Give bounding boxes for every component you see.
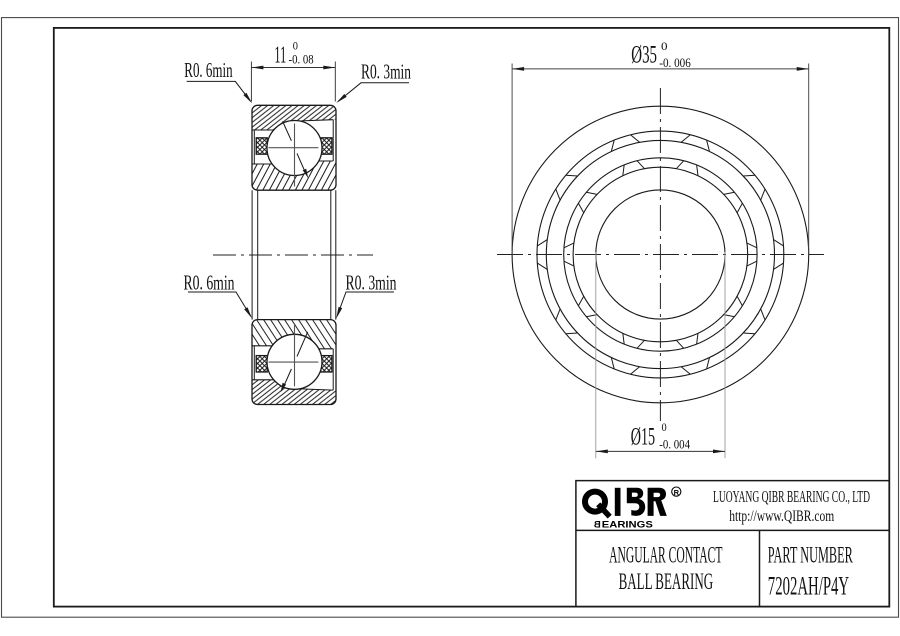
svg-text:BALL BEARING: BALL BEARING — [619, 569, 714, 595]
svg-text:R0. 3min: R0. 3min — [361, 59, 411, 83]
svg-text:R0. 6min: R0. 6min — [184, 271, 235, 295]
svg-text:http://www.QIBR.com: http://www.QIBR.com — [729, 508, 834, 525]
svg-text:7202AH/P4Y: 7202AH/P4Y — [768, 572, 849, 601]
svg-text:R0. 3min: R0. 3min — [346, 271, 397, 295]
svg-text:Ø35: Ø35 — [631, 41, 657, 68]
svg-text:-0. 08: -0. 08 — [289, 52, 314, 67]
svg-text:-0. 006: -0. 006 — [659, 55, 691, 70]
svg-text:0: 0 — [661, 39, 668, 53]
svg-text:PART NUMBER: PART NUMBER — [768, 543, 853, 569]
svg-text:EARINGS: EARINGS — [602, 520, 654, 531]
svg-text:R: R — [674, 488, 680, 497]
svg-text:ANGULAR CONTACT: ANGULAR CONTACT — [609, 543, 722, 569]
svg-text:0: 0 — [662, 420, 667, 434]
svg-text:LUOYANG QIBR BEARING CO., LTD: LUOYANG QIBR BEARING CO., LTD — [713, 487, 870, 506]
svg-text:-0. 004: -0. 004 — [659, 437, 690, 452]
svg-text:Ø15: Ø15 — [631, 423, 655, 450]
svg-text:R0. 6min: R0. 6min — [184, 58, 233, 82]
svg-text:11: 11 — [274, 41, 286, 68]
svg-text:B: B — [594, 520, 601, 531]
